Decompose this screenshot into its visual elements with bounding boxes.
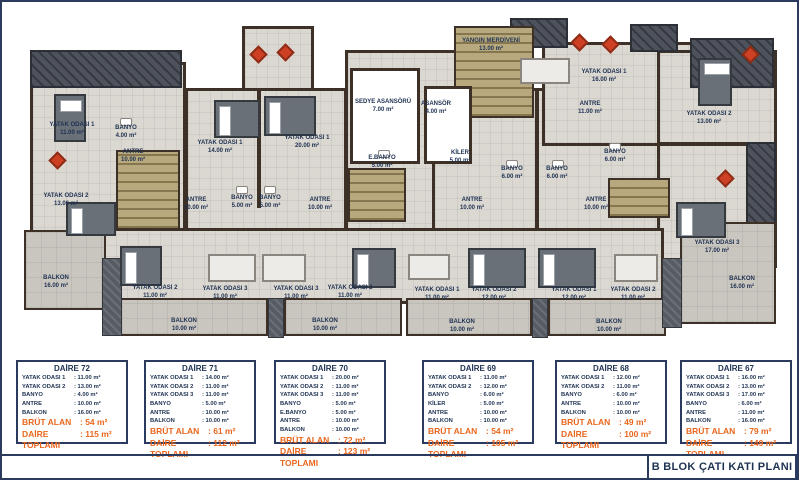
unit-room-row: YATAK ODASI 2: 11.00 m² — [280, 383, 380, 392]
room-row-value: : 6.00 m² — [613, 391, 637, 400]
room-row-label: BANYO — [22, 391, 74, 400]
room-label: ANTRE10.00 m² — [308, 197, 332, 213]
brut-alan: BRÜT ALAN: 54 m² — [428, 426, 528, 437]
room-row-label: YATAK ODASI 2 — [150, 383, 202, 392]
room-row-value: : 6.00 m² — [738, 400, 762, 409]
room-label: ANTRE11.00 m² — [578, 101, 602, 117]
unit-table-67: DAİRE 67YATAK ODASI 1: 16.00 m²YATAK ODA… — [680, 360, 792, 444]
room-row-label: BALKON — [686, 417, 738, 426]
room-row-value: : 10.00 m² — [613, 400, 640, 409]
room-name: ANTRE — [121, 149, 145, 157]
unit-title: DAİRE 68 — [561, 364, 661, 373]
room-row-label: YATAK ODASI 3 — [686, 391, 738, 400]
room-row-value: : 11.00 m² — [202, 383, 228, 392]
room-area: 6.00 m² — [604, 157, 626, 165]
unit-table-70: DAİRE 70YATAK ODASI 1: 20.00 m²YATAK ODA… — [274, 360, 386, 444]
room-label: BALKON10.00 m² — [449, 319, 475, 335]
room-row-label: YATAK ODASI 1 — [428, 374, 480, 383]
room-name: YATAK ODASI 1 — [582, 69, 627, 77]
unit-room-row: YATAK ODASI 3: 11.00 m² — [280, 391, 380, 400]
room-label: YATAK ODASI 211.00 m² — [611, 287, 656, 303]
room-row-label: YATAK ODASI 2 — [428, 383, 480, 392]
room-row-value: : 10.00 m² — [74, 400, 101, 409]
room-label: YATAK ODASI 211.00 m² — [133, 285, 178, 301]
room-row-value: : 11.00 m² — [332, 383, 358, 392]
room-row-value: : 20.00 m² — [332, 374, 359, 383]
room-name: YATAK ODASI 1 — [198, 140, 243, 148]
room-name: BALKON — [449, 319, 475, 327]
room-label: KİLER5.00 m² — [450, 150, 471, 166]
room-row-label: YATAK ODASI 2 — [561, 383, 613, 392]
unit-room-row: ANTRE: 10.00 m² — [280, 417, 380, 426]
room-name: ANTRE — [460, 197, 484, 205]
unit-room-row: YATAK ODASI 2: 12.00 m² — [428, 383, 528, 392]
room-name: BALKON — [43, 275, 69, 283]
unit-room-row: BALKON: 10.00 m² — [280, 426, 380, 435]
unit-room-row: YATAK ODASI 2: 13.00 m² — [22, 383, 122, 392]
room-name: YATAK ODASI 1 — [50, 122, 95, 130]
unit-room-row: YATAK ODASI 1: 14.00 m² — [150, 374, 250, 383]
room-area: 5.00 m² — [231, 203, 253, 211]
room-name: ASANSÖR — [421, 101, 451, 109]
room-row-value: : 16.00 m² — [738, 417, 765, 426]
room-row-label: BALKON — [150, 417, 202, 426]
room-name: ANTRE — [578, 101, 602, 109]
room-label: YATAK ODASI 213.00 m² — [687, 111, 732, 127]
unit-room-row: ANTRE: 10.00 m² — [428, 409, 528, 418]
daire-toplami-value: : 112 m² — [208, 438, 240, 461]
unit-room-row: BANYO: 5.00 m² — [280, 400, 380, 409]
room-row-label: YATAK ODASI 3 — [150, 391, 202, 400]
unit-room-row: BANYO: 6.00 m² — [428, 391, 528, 400]
room-row-value: : 10.00 m² — [332, 417, 359, 426]
brut-alan-value: : 79 m² — [744, 426, 771, 437]
room-name: YATAK ODASI 1 — [552, 287, 597, 295]
room-label: BALKON16.00 m² — [43, 275, 69, 291]
room-row-label: YATAK ODASI 1 — [280, 374, 332, 383]
brut-alan-label: BRÜT ALAN — [150, 426, 208, 437]
unit-title: DAİRE 71 — [150, 364, 250, 373]
room-row-value: : 11.00 m² — [480, 374, 506, 383]
room-label: YATAK ODASI 311.00 m² — [274, 286, 319, 302]
unit-room-row: BANYO: 6.00 m² — [561, 391, 661, 400]
daire-toplami-value: : 100 m² — [619, 429, 651, 452]
room-row-label: BALKON — [22, 409, 74, 418]
room-name: YATAK ODASI 3 — [695, 240, 740, 248]
brut-alan-label: BRÜT ALAN — [280, 435, 338, 446]
room-area: 16.00 m² — [582, 77, 627, 85]
room-label: BANYO5.00 m² — [231, 195, 253, 211]
room-area: 10.00 m² — [121, 157, 145, 165]
unit-room-row: ANTRE: 10.00 m² — [22, 400, 122, 409]
room-area: 4.00 m² — [421, 109, 451, 117]
room-name: BANYO — [501, 166, 523, 174]
unit-room-row: YATAK ODASI 2: 11.00 m² — [150, 383, 250, 392]
daire-toplami-label: DAİRE TOPLAMI — [22, 429, 80, 452]
room-row-value: : 11.00 m² — [738, 409, 764, 418]
room-row-label: ANTRE — [22, 400, 74, 409]
room-label: YATAK ODASI 311.00 m² — [203, 286, 248, 302]
room-area: 10.00 m² — [449, 327, 475, 335]
room-row-value: : 11.00 m² — [74, 374, 100, 383]
room-row-value: : 12.00 m² — [613, 374, 640, 383]
room-label: YATAK ODASI 120.00 m² — [285, 135, 330, 151]
room-label: YATAK ODASI 213.00 m² — [44, 193, 89, 209]
brut-alan: BRÜT ALAN: 54 m² — [22, 417, 122, 428]
room-name: YATAK ODASI 2 — [328, 285, 373, 293]
room-name: BANYO — [231, 195, 253, 203]
room-row-value: : 13.00 m² — [74, 383, 101, 392]
room-label: E.BANYO5.00 m² — [368, 155, 395, 171]
room-area: 10.00 m² — [312, 326, 338, 334]
room-row-value: : 10.00 m² — [202, 417, 229, 426]
room-row-label: YATAK ODASI 2 — [686, 383, 738, 392]
room-label: YATAK ODASI 317.00 m² — [695, 240, 740, 256]
unit-room-row: YATAK ODASI 1: 11.00 m² — [428, 374, 528, 383]
unit-table-71: DAİRE 71YATAK ODASI 1: 14.00 m²YATAK ODA… — [144, 360, 256, 444]
brut-alan-value: : 49 m² — [619, 417, 646, 428]
room-area: 6.00 m² — [501, 174, 523, 182]
room-row-label: BALKON — [428, 417, 480, 426]
room-label: BANYO5.00 m² — [259, 195, 281, 211]
room-row-label: YATAK ODASI 3 — [280, 391, 332, 400]
daire-toplami: DAİRE TOPLAMI: 112 m² — [150, 438, 250, 461]
room-area: 10.00 m² — [184, 205, 208, 213]
room-area: 11.00 m² — [611, 295, 656, 303]
room-row-label: YATAK ODASI 2 — [280, 383, 332, 392]
room-name: BANYO — [546, 166, 568, 174]
brut-alan-value: : 54 m² — [486, 426, 513, 437]
unit-table-68: DAİRE 68YATAK ODASI 1: 12.00 m²YATAK ODA… — [555, 360, 667, 444]
room-area: 11.00 m² — [50, 130, 95, 138]
brut-alan-label: BRÜT ALAN — [22, 417, 80, 428]
room-name: YANGIN MERDİVENİ — [462, 38, 520, 46]
room-row-label: YATAK ODASI 1 — [686, 374, 738, 383]
room-label: BANYO4.00 m² — [115, 125, 137, 141]
brut-alan-label: BRÜT ALAN — [686, 426, 744, 437]
room-area: 10.00 m² — [171, 326, 197, 334]
room-area: 11.00 m² — [415, 295, 460, 303]
room-row-label: ANTRE — [428, 409, 480, 418]
room-area: 10.00 m² — [460, 205, 484, 213]
daire-toplami: DAİRE TOPLAMI: 115 m² — [22, 429, 122, 452]
unit-table-69: DAİRE 69YATAK ODASI 1: 11.00 m²YATAK ODA… — [422, 360, 534, 444]
room-area: 5.00 m² — [450, 158, 471, 166]
room-name: BANYO — [115, 125, 137, 133]
room-row-label: BANYO — [280, 400, 332, 409]
room-label: BALKON10.00 m² — [171, 318, 197, 334]
room-row-label: KİLER — [428, 400, 480, 409]
daire-toplami-value: : 105 m² — [486, 438, 518, 461]
brut-alan-value: : 72 m² — [338, 435, 365, 446]
unit-room-row: YATAK ODASI 1: 11.00 m² — [22, 374, 122, 383]
room-area: 10.00 m² — [584, 205, 608, 213]
unit-room-row: BALKON: 16.00 m² — [22, 409, 122, 418]
unit-room-row: BANYO: 6.00 m² — [686, 400, 786, 409]
unit-table-72: DAİRE 72YATAK ODASI 1: 11.00 m²YATAK ODA… — [16, 360, 128, 444]
room-row-value: : 14.00 m² — [202, 374, 229, 383]
unit-room-row: BALKON: 10.00 m² — [561, 409, 661, 418]
room-row-label: YATAK ODASI 1 — [561, 374, 613, 383]
room-area: 11.00 m² — [328, 293, 373, 301]
room-area: 13.00 m² — [687, 119, 732, 127]
room-row-value: : 5.00 m² — [332, 400, 356, 409]
unit-title: DAİRE 67 — [686, 364, 786, 373]
room-row-value: : 12.00 m² — [480, 383, 507, 392]
room-area: 17.00 m² — [695, 248, 740, 256]
room-row-label: BALKON — [280, 426, 332, 435]
room-name: YATAK ODASI 2 — [133, 285, 178, 293]
room-row-label: E.BANYO — [280, 409, 332, 418]
room-row-label: ANTRE — [280, 417, 332, 426]
unit-room-row: BALKON: 16.00 m² — [686, 417, 786, 426]
room-area: 11.00 m² — [203, 294, 248, 302]
daire-toplami-value: : 115 m² — [80, 429, 112, 452]
room-name: BALKON — [312, 318, 338, 326]
room-name: YATAK ODASI 2 — [687, 111, 732, 119]
room-name: BALKON — [596, 319, 622, 327]
room-name: ANTRE — [184, 197, 208, 205]
room-row-value: : 11.00 m² — [202, 391, 228, 400]
unit-room-row: BANYO: 5.00 m² — [150, 400, 250, 409]
room-area: 16.00 m² — [43, 283, 69, 291]
room-label: YATAK ODASI 111.00 m² — [50, 122, 95, 138]
room-row-value: : 5.00 m² — [332, 409, 356, 418]
room-name: YATAK ODASI 1 — [285, 135, 330, 143]
room-label: BANYO6.00 m² — [604, 149, 626, 165]
room-name: ANTRE — [584, 197, 608, 205]
brut-alan: BRÜT ALAN: 61 m² — [150, 426, 250, 437]
unit-title: DAİRE 72 — [22, 364, 122, 373]
brut-alan: BRÜT ALAN: 79 m² — [686, 426, 786, 437]
room-row-label: YATAK ODASI 2 — [22, 383, 74, 392]
room-label: YANGIN MERDİVENİ13.00 m² — [462, 38, 520, 54]
daire-toplami-label: DAİRE TOPLAMI — [280, 446, 338, 469]
daire-toplami-label: DAİRE TOPLAMI — [561, 429, 619, 452]
room-area: 16.00 m² — [729, 284, 755, 292]
unit-room-row: BALKON: 10.00 m² — [428, 417, 528, 426]
brut-alan-value: : 61 m² — [208, 426, 235, 437]
brut-alan-label: BRÜT ALAN — [428, 426, 486, 437]
room-area: 12.00 m² — [472, 295, 517, 303]
room-row-label: YATAK ODASI 1 — [150, 374, 202, 383]
room-name: YATAK ODASI 2 — [611, 287, 656, 295]
room-label: ANTRE10.00 m² — [184, 197, 208, 213]
room-name: YATAK ODASI 3 — [203, 286, 248, 294]
unit-room-row: ANTRE: 11.00 m² — [686, 409, 786, 418]
room-label: BALKON16.00 m² — [729, 276, 755, 292]
unit-room-row: YATAK ODASI 3: 11.00 m² — [150, 391, 250, 400]
room-area: 6.00 m² — [546, 174, 568, 182]
room-area: 13.00 m² — [462, 46, 520, 54]
room-row-label: BANYO — [150, 400, 202, 409]
unit-title: DAİRE 69 — [428, 364, 528, 373]
room-row-value: : 10.00 m² — [480, 417, 507, 426]
room-label: YATAK ODASI 116.00 m² — [582, 69, 627, 85]
brut-alan-label: BRÜT ALAN — [561, 417, 619, 428]
room-label: ANTRE10.00 m² — [460, 197, 484, 213]
room-label: YATAK ODASI 111.00 m² — [415, 287, 460, 303]
unit-room-row: BALKON: 10.00 m² — [150, 417, 250, 426]
room-name: SEDYE ASANSÖRÜ — [355, 99, 411, 107]
room-label: BALKON10.00 m² — [596, 319, 622, 335]
room-area: 5.00 m² — [259, 203, 281, 211]
room-area: 5.00 m² — [368, 163, 395, 171]
room-row-label: BANYO — [428, 391, 480, 400]
plan-sheet: YATAK ODASI 111.00 m²BANYO4.00 m²ANTRE10… — [0, 0, 799, 480]
room-row-value: : 10.00 m² — [480, 409, 507, 418]
daire-toplami: DAİRE TOPLAMI: 123 m² — [280, 446, 380, 469]
room-area: 11.00 m² — [274, 294, 319, 302]
daire-toplami-label: DAİRE TOPLAMI — [150, 438, 208, 461]
brut-alan-value: : 54 m² — [80, 417, 107, 428]
unit-title: DAİRE 70 — [280, 364, 380, 373]
room-label: BANYO6.00 m² — [546, 166, 568, 182]
room-name: YATAK ODASI 1 — [415, 287, 460, 295]
room-area: 13.00 m² — [44, 201, 89, 209]
room-row-value: : 16.00 m² — [74, 409, 101, 418]
room-row-value: : 16.00 m² — [738, 374, 765, 383]
room-label: ANTRE10.00 m² — [121, 149, 145, 165]
room-area: 20.00 m² — [285, 143, 330, 151]
daire-toplami: DAİRE TOPLAMI: 100 m² — [561, 429, 661, 452]
room-label: YATAK ODASI 212.00 m² — [472, 287, 517, 303]
title-block: B BLOK ÇATI KATI PLANI — [647, 454, 797, 480]
room-name: BALKON — [171, 318, 197, 326]
room-area: 11.00 m² — [133, 293, 178, 301]
room-row-label: BANYO — [561, 391, 613, 400]
room-row-value: : 4.00 m² — [74, 391, 98, 400]
unit-room-row: BANYO: 4.00 m² — [22, 391, 122, 400]
room-row-value: : 10.00 m² — [332, 426, 359, 435]
room-area: 11.00 m² — [578, 109, 602, 117]
room-row-value: : 5.00 m² — [202, 400, 226, 409]
room-area: 12.00 m² — [552, 295, 597, 303]
room-label: YATAK ODASI 112.00 m² — [552, 287, 597, 303]
room-row-value: : 10.00 m² — [202, 409, 229, 418]
room-row-value: : 10.00 m² — [613, 409, 640, 418]
room-row-value: : 5.00 m² — [480, 400, 504, 409]
plan-title: B BLOK ÇATI KATI PLANI — [652, 461, 793, 473]
room-row-label: ANTRE — [686, 409, 738, 418]
unit-room-row: E.BANYO: 5.00 m² — [280, 409, 380, 418]
unit-room-row: YATAK ODASI 2: 13.00 m² — [686, 383, 786, 392]
unit-room-row: YATAK ODASI 1: 20.00 m² — [280, 374, 380, 383]
room-label: BALKON10.00 m² — [312, 318, 338, 334]
daire-toplami-label: DAİRE TOPLAMI — [428, 438, 486, 461]
room-row-value: : 11.00 m² — [613, 383, 639, 392]
room-name: YATAK ODASI 3 — [274, 286, 319, 294]
brut-alan: BRÜT ALAN: 72 m² — [280, 435, 380, 446]
room-row-label: YATAK ODASI 1 — [22, 374, 74, 383]
room-name: BANYO — [259, 195, 281, 203]
room-label: ASANSÖR4.00 m² — [421, 101, 451, 117]
room-row-value: : 6.00 m² — [480, 391, 504, 400]
room-label: YATAK ODASI 211.00 m² — [328, 285, 373, 301]
brut-alan: BRÜT ALAN: 49 m² — [561, 417, 661, 428]
room-area: 10.00 m² — [308, 205, 332, 213]
unit-room-row: YATAK ODASI 3: 17.00 m² — [686, 391, 786, 400]
room-row-label: BANYO — [686, 400, 738, 409]
unit-room-row: YATAK ODASI 1: 12.00 m² — [561, 374, 661, 383]
room-name: KİLER — [450, 150, 471, 158]
room-name: E.BANYO — [368, 155, 395, 163]
room-name: BANYO — [604, 149, 626, 157]
room-area: 14.00 m² — [198, 148, 243, 156]
room-area: 10.00 m² — [596, 327, 622, 335]
room-label: SEDYE ASANSÖRÜ7.00 m² — [355, 99, 411, 115]
unit-room-row: ANTRE: 10.00 m² — [561, 400, 661, 409]
room-row-value: : 11.00 m² — [332, 391, 358, 400]
room-row-value: : 17.00 m² — [738, 391, 765, 400]
room-label: ANTRE10.00 m² — [584, 197, 608, 213]
room-area: 7.00 m² — [355, 107, 411, 115]
room-row-value: : 13.00 m² — [738, 383, 765, 392]
unit-room-row: YATAK ODASI 1: 16.00 m² — [686, 374, 786, 383]
room-label: BANYO6.00 m² — [501, 166, 523, 182]
room-name: BALKON — [729, 276, 755, 284]
room-label: YATAK ODASI 114.00 m² — [198, 140, 243, 156]
unit-room-row: KİLER: 5.00 m² — [428, 400, 528, 409]
room-name: YATAK ODASI 2 — [472, 287, 517, 295]
room-area: 4.00 m² — [115, 133, 137, 141]
room-name: YATAK ODASI 2 — [44, 193, 89, 201]
unit-room-row: ANTRE: 10.00 m² — [150, 409, 250, 418]
room-row-label: ANTRE — [150, 409, 202, 418]
unit-room-row: YATAK ODASI 2: 11.00 m² — [561, 383, 661, 392]
daire-toplami-value: : 123 m² — [338, 446, 370, 469]
room-row-label: ANTRE — [561, 400, 613, 409]
room-name: ANTRE — [308, 197, 332, 205]
daire-toplami: DAİRE TOPLAMI: 105 m² — [428, 438, 528, 461]
room-row-label: BALKON — [561, 409, 613, 418]
